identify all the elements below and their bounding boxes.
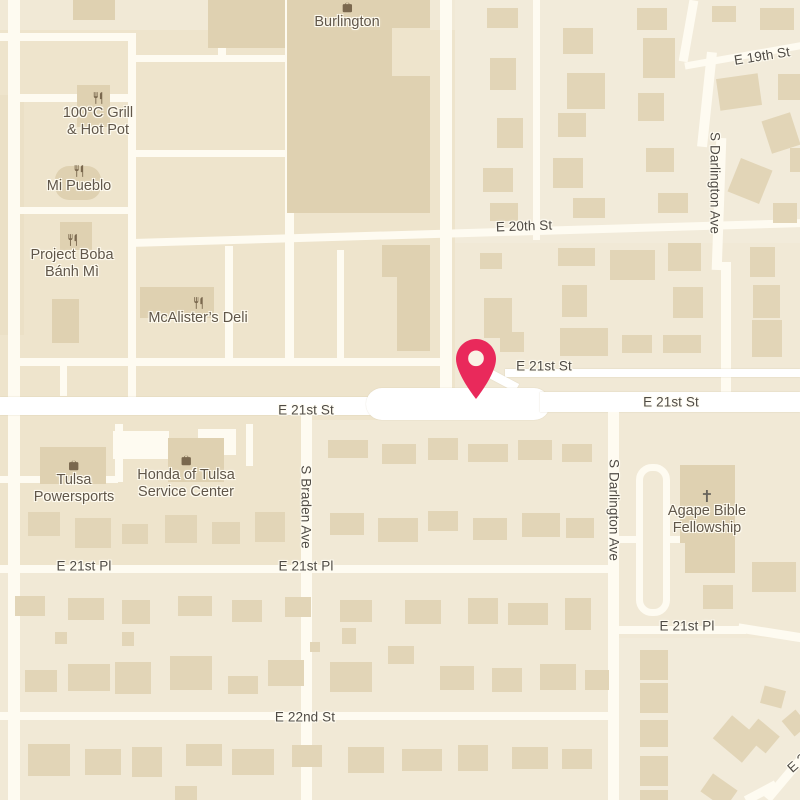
house [508,603,548,625]
house [712,6,736,22]
house [68,664,110,691]
house [232,600,262,622]
house [15,596,45,616]
house [330,662,372,692]
house [115,662,151,694]
road [128,55,290,62]
house [310,642,320,652]
street-label-s-darlington-ave-south: S Darlington Ave [607,459,622,561]
house [492,668,522,692]
house [122,632,134,646]
house [558,113,586,137]
house [428,438,458,460]
house [75,518,111,548]
house [640,756,668,786]
house [402,749,442,771]
building [73,0,115,20]
poi-project-boba-banh-mi[interactable]: Project BobaBánh Mì [30,233,113,281]
house [566,518,594,538]
poi-100c-grill-hot-pot[interactable]: 100°C Grill& Hot Pot [63,91,133,139]
road [440,0,452,392]
house [25,670,57,692]
house [790,148,800,172]
house [440,666,474,690]
house [490,58,516,90]
house [487,8,518,28]
house [328,440,368,458]
house [668,243,701,271]
house [760,8,794,30]
house [228,676,258,694]
house [778,74,800,100]
house [468,444,508,462]
street-label-e-22nd-st: E 22nd St [275,710,335,725]
house [752,562,796,592]
house [340,600,372,622]
house [640,683,668,713]
road [246,424,253,466]
house [752,320,782,357]
house [637,8,667,30]
house [132,747,162,777]
house [497,118,523,148]
house [122,600,150,624]
street-label-e-21st-pl-west2: E 21st Pl [279,559,334,574]
house [540,664,576,690]
house [473,518,507,540]
house [55,632,67,644]
poi-agape-bible-fellowship[interactable]: Agape BibleFellowship [668,489,746,537]
house [68,598,104,620]
house [292,745,322,767]
house [285,597,311,617]
road [60,366,67,396]
house [703,585,733,609]
house [330,513,364,535]
road [20,207,132,214]
house [122,524,148,544]
poi-burlington[interactable]: Burlington [314,0,379,31]
house [170,656,212,690]
house [522,513,560,537]
restaurant-icon [65,233,79,247]
building [685,543,735,573]
house [562,749,592,769]
house [428,511,458,531]
poi-honda-of-tulsa-service-center[interactable]: Honda of TulsaService Center [137,453,235,501]
house [643,38,675,78]
building [52,299,79,343]
house [663,335,701,353]
house [186,744,222,766]
house [573,198,605,218]
house [558,248,595,266]
house [562,444,592,462]
building [382,245,430,277]
house [567,73,605,109]
house [512,747,548,769]
house [640,790,668,800]
house [640,650,668,680]
house [658,193,688,213]
house [178,596,212,616]
house [716,73,762,111]
house [342,628,356,644]
road [0,33,135,41]
house [382,444,416,464]
street-label-s-braden-ave: S Braden Ave [299,465,314,549]
building [397,275,430,351]
house [646,148,674,172]
house [85,749,121,775]
house [378,518,418,542]
building [208,0,285,48]
shopping-bag-icon [67,458,81,472]
house [518,440,552,460]
map-canvas[interactable]: E 19th St E 20th St E 21st St E 21st St … [0,0,800,800]
house [165,515,197,543]
poi-mi-pueblo[interactable]: Mi Pueblo [47,164,111,195]
house [563,28,593,54]
restaurant-icon [91,91,105,105]
house [468,598,498,624]
restaurant-icon [191,296,205,310]
house [500,332,524,352]
house [212,522,240,544]
house [480,253,502,269]
house [553,158,583,188]
location-pin[interactable] [456,336,496,402]
poi-mcalisters-deli[interactable]: McAlister’s Deli [148,296,247,327]
street-label-s-darlington-ave-north: S Darlington Ave [708,132,723,234]
house [255,512,285,542]
building [392,28,430,76]
church-cross-icon [699,489,715,503]
shopping-bag-icon [340,0,354,14]
house [585,670,609,690]
house [232,749,274,775]
restaurant-icon [72,164,86,178]
house [348,747,384,773]
street-label-e-21st-pl-west1: E 21st Pl [57,559,112,574]
house [388,646,414,664]
house [753,285,780,318]
shopping-bag-icon [179,453,193,467]
house [562,285,587,317]
parking-loop-road [636,464,670,616]
house [773,203,797,223]
road [128,150,290,157]
house [673,287,703,318]
house [28,512,60,536]
house [622,335,652,353]
house [560,328,608,356]
house [640,720,668,747]
road [337,250,344,362]
road [20,358,440,366]
house [458,745,488,771]
street-label-e-21st-st-west: E 21st St [278,403,334,418]
house [28,744,70,776]
house [565,598,591,630]
house [483,168,513,192]
street-label-e-21st-pl-east: E 21st Pl [660,619,715,634]
house [175,786,197,800]
house [750,247,775,277]
house [405,600,441,624]
house [268,660,304,686]
road [533,0,540,240]
poi-tulsa-powersports[interactable]: TulsaPowersports [34,458,115,506]
street-label-e-21st-st-frontage: E 21st St [516,359,572,374]
house [610,250,655,280]
street-label-e-21st-st-east: E 21st St [643,395,699,410]
house [638,93,664,121]
street-label-e-20th-st: E 20th St [496,218,553,235]
